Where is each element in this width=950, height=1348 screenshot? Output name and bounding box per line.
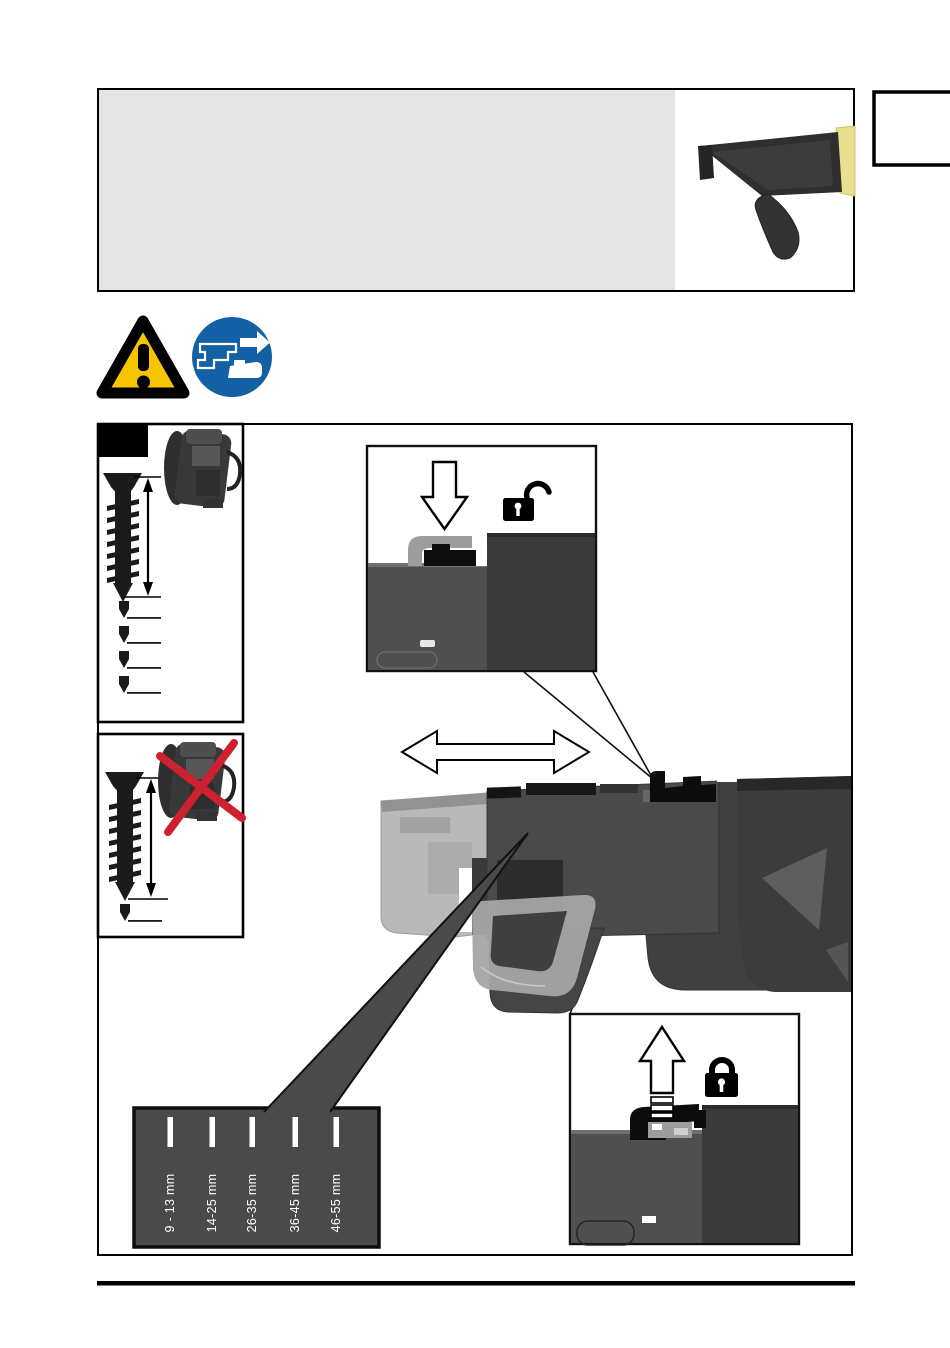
page-corner-box <box>874 92 950 165</box>
header-gray-area <box>99 90 675 290</box>
section-marker <box>99 425 148 457</box>
depth-tick <box>210 1117 216 1147</box>
depth-range-label: 46-55 mm <box>327 1158 345 1248</box>
depth-range-label: 26-35 mm <box>243 1158 261 1248</box>
slide-steps <box>651 1097 673 1118</box>
footer-rule <box>97 1281 855 1286</box>
depth-tick <box>293 1117 299 1147</box>
depth-range-label: 9 - 13 mm <box>161 1158 179 1248</box>
screw-length-box-allowed <box>98 424 243 722</box>
detail-inset-lock <box>570 1014 799 1245</box>
depth-range-label: 36-45 mm <box>286 1158 304 1248</box>
depth-tick <box>168 1117 174 1147</box>
detail-inset-unlock <box>367 446 596 671</box>
figure-artwork <box>0 0 950 1348</box>
screw-length-box-disallowed <box>98 734 243 937</box>
depth-tick <box>334 1117 340 1147</box>
depth-tick <box>250 1117 256 1147</box>
header-figure <box>98 89 855 291</box>
depth-range-label: 14-25 mm <box>203 1158 221 1248</box>
warning-triangle-icon <box>102 321 184 393</box>
disconnect-plug-icon <box>192 317 272 397</box>
manual-figure-page: 9 - 13 mm 14-25 mm 26-35 mm 36-45 mm 46-… <box>0 0 950 1348</box>
